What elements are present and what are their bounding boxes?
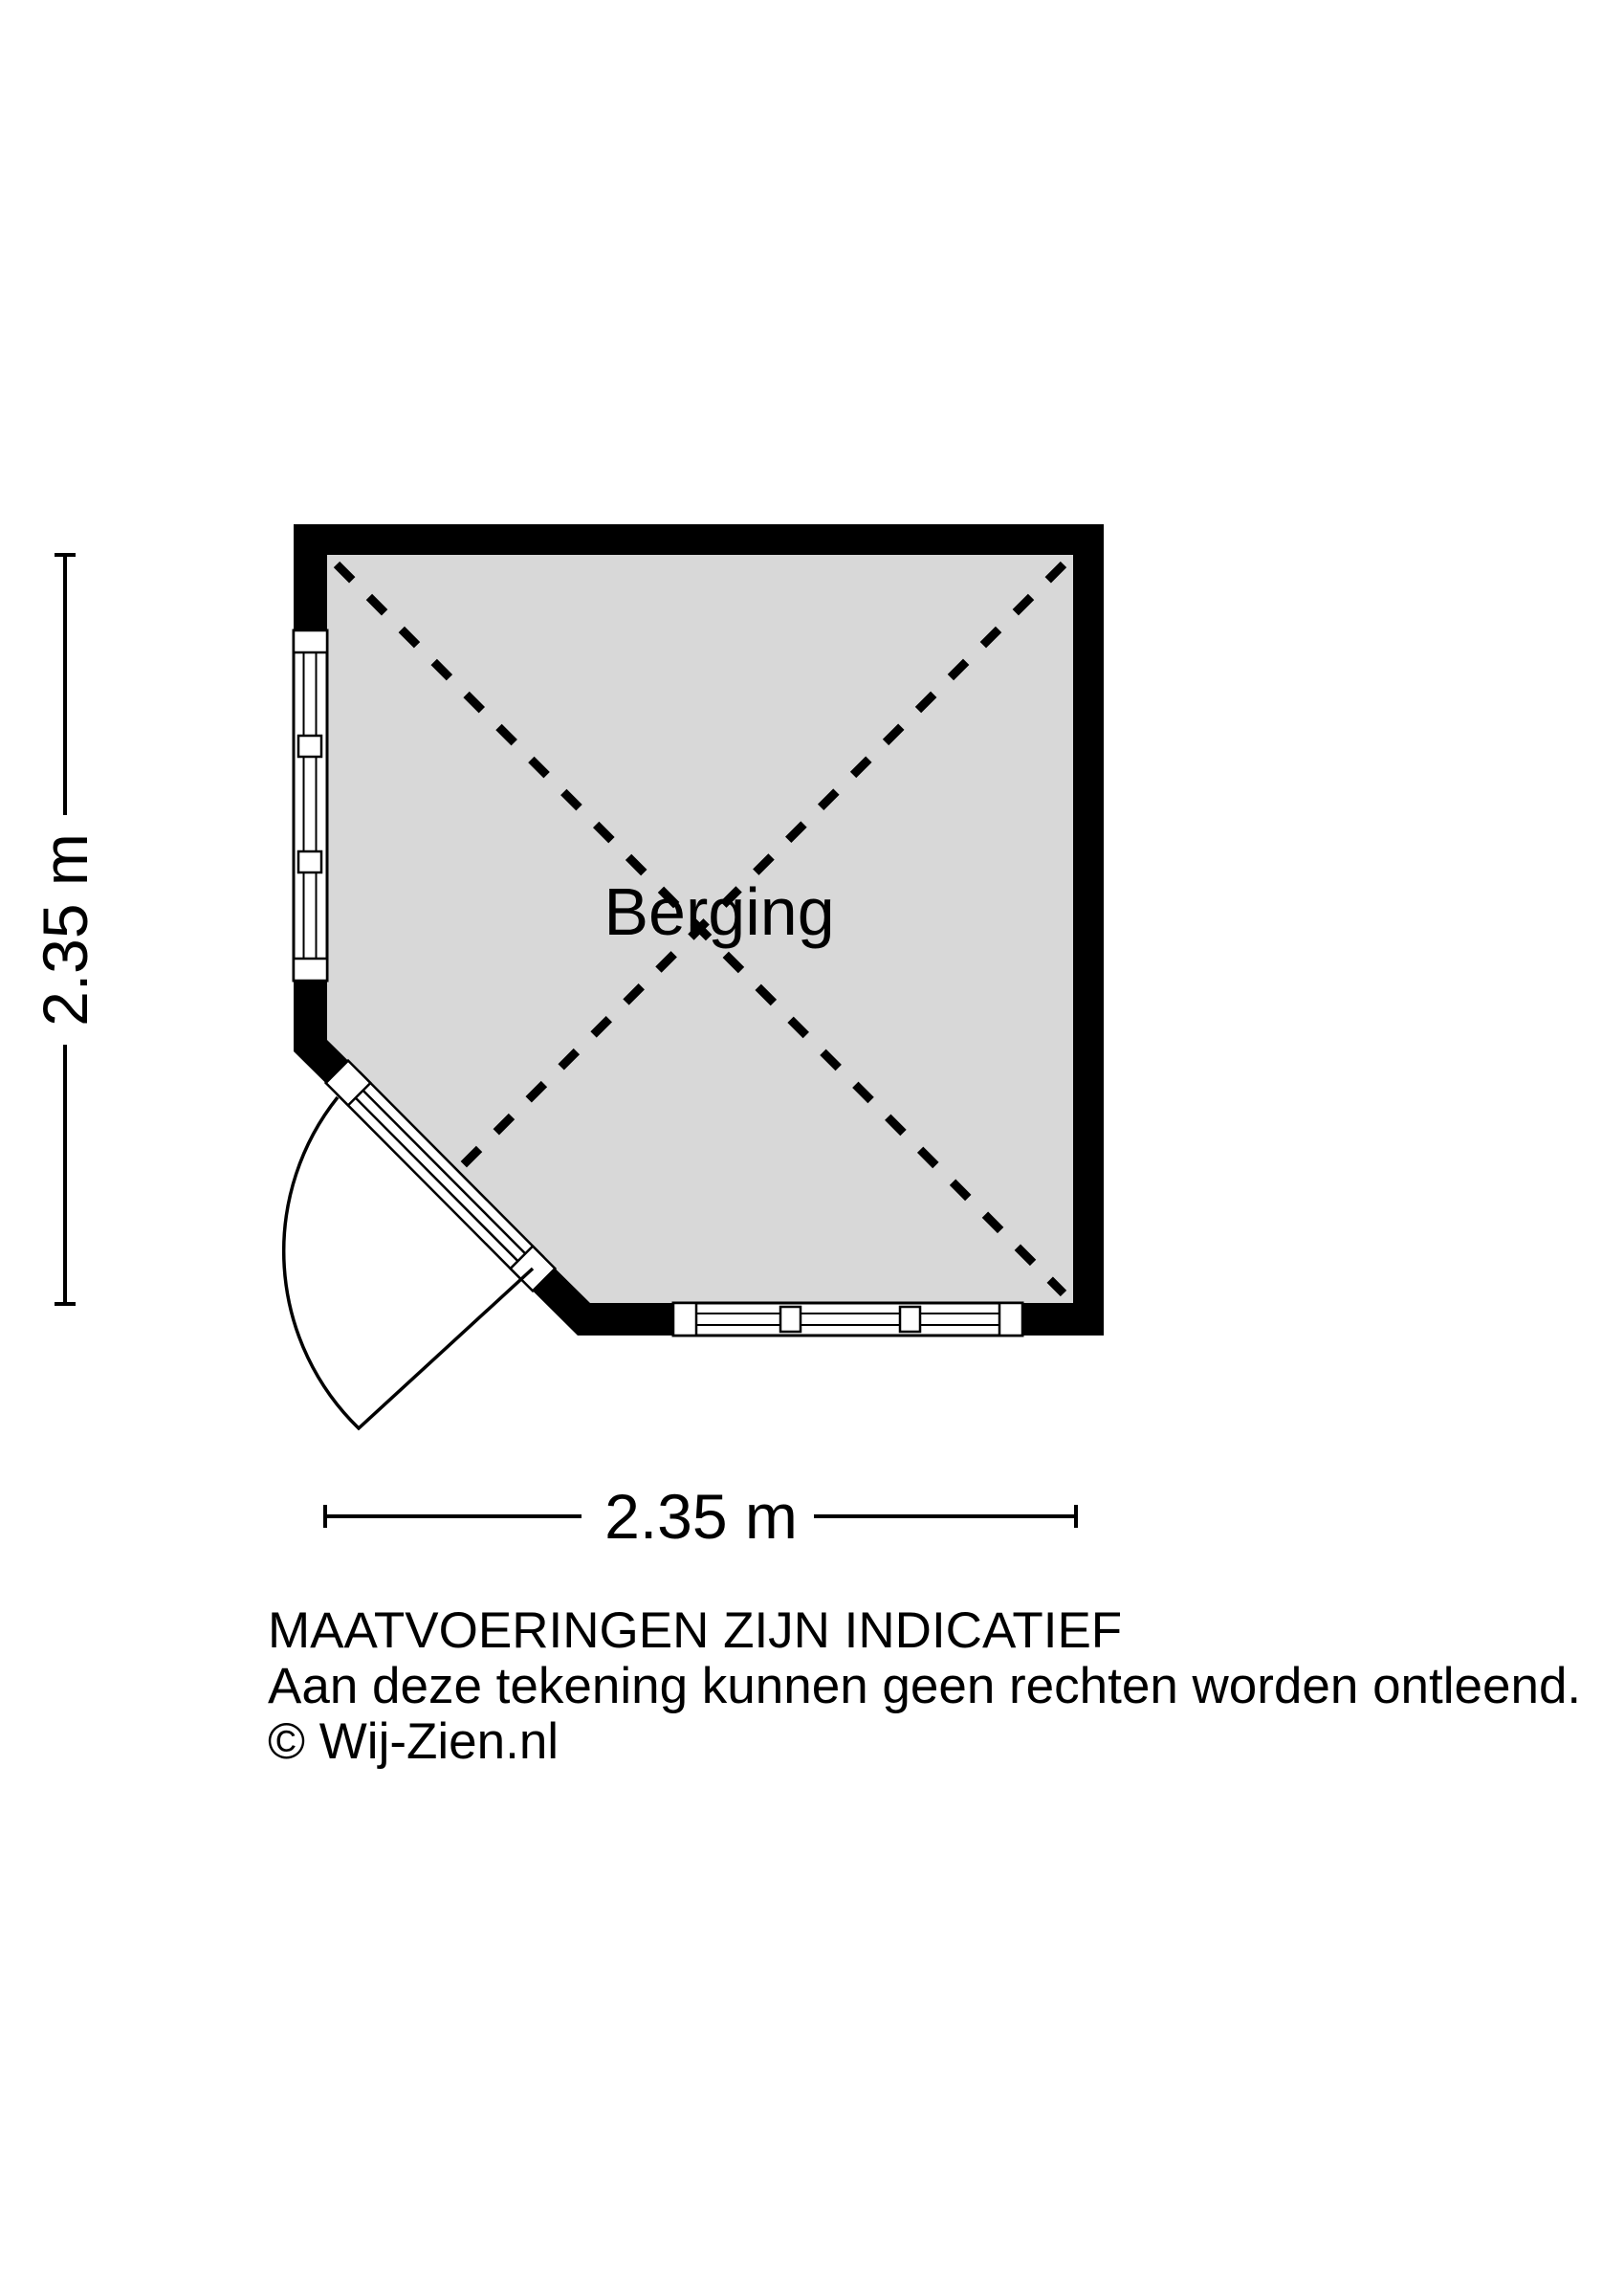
floorplan-page: Berging 2.35 m 2.35 m MAATVOERINGEN ZIJN… [0,0,1624,2296]
window-left-end-block-top [294,630,327,652]
window-bottom-mullion-2 [900,1307,920,1332]
wall-bottom-right [1022,1303,1104,1336]
disclaimer-line-2: Aan deze tekening kunnen geen rechten wo… [268,1658,1581,1714]
window-left [294,630,327,981]
dimension-vertical-label: 2.35 m [30,833,100,1027]
window-bottom-frame [673,1303,1022,1336]
wall-top [294,524,1104,555]
wall-right [1073,524,1104,1336]
dimension-horizontal-label: 2.35 m [604,1481,798,1552]
window-left-end-block-bottom [294,959,327,981]
window-left-frame [294,630,327,981]
wall-left-upper [294,524,327,630]
window-bottom-end-block-right [999,1303,1022,1336]
window-bottom-end-block-left [673,1303,696,1336]
window-left-mullion-2 [298,851,321,872]
room-label: Berging [604,874,834,949]
disclaimer-line-1: MAATVOERINGEN ZIJN INDICATIEF [268,1602,1122,1659]
copyright-text: © Wij-Zien.nl [268,1713,559,1770]
window-bottom [673,1303,1022,1336]
floorplan-canvas: Berging 2.35 m 2.35 m MAATVOERINGEN ZIJN… [0,0,1624,2296]
window-bottom-mullion-1 [780,1307,801,1332]
window-left-mullion-1 [298,736,321,757]
